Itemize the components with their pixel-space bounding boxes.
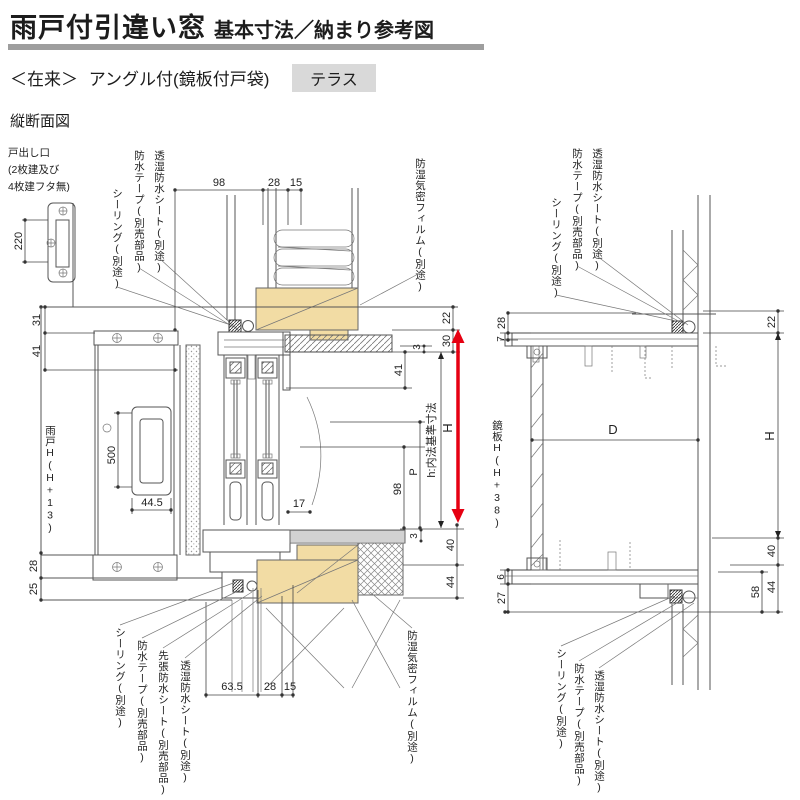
left-section-drawing: 戸出し口 (2枚建及び 4枚建フタ無) 220: [8, 146, 465, 796]
right-drawing-right-dims: 22 H 40 44 58: [703, 309, 784, 613]
page: 雨戸付引違い窓基本寸法／納まり参考図 ＜在来＞ アングル付(鏡板付戸袋) テラス…: [0, 0, 800, 800]
door-outlet-bracket: 220: [13, 203, 75, 307]
label-sealing-bottom-right: シーリング(別途): [555, 648, 567, 750]
dim-D: D: [608, 422, 617, 437]
dim-27: 27: [496, 592, 508, 604]
dim-41-left: 41: [31, 345, 43, 357]
dim-30: 30: [441, 335, 453, 347]
dim-6: 6: [496, 574, 507, 580]
dim-28-top: 28: [268, 177, 280, 189]
dim-31: 31: [31, 314, 43, 326]
dim-44-right-drawing: 44: [766, 581, 778, 593]
section-drawings: 戸出し口 (2枚建及び 4枚建フタ無) 220: [0, 140, 800, 800]
title-main: 雨戸付引違い窓: [10, 13, 206, 43]
dim-22-right: 22: [441, 312, 453, 324]
dim-15-bottom: 15: [284, 681, 296, 693]
dim-44-left-drawing: 44: [445, 576, 457, 588]
right-top-labels: シーリング(別途) 防水テープ(別売部品) 透湿防水シート(別途): [550, 147, 688, 325]
handle-dims: 500 44.5: [103, 411, 173, 514]
head-sealing-backup: [243, 321, 254, 332]
dim-H-left-drawing: H: [440, 423, 455, 432]
label-tape-bottom-left: 防水テープ(別売部品): [136, 639, 148, 764]
red-H-dimension-arrow: H: [440, 329, 465, 523]
label-h-inner-dim: h:内法基準寸法: [424, 402, 438, 477]
label-sheet-top-left: 透湿防水シート(別途): [153, 150, 165, 274]
shutterbox-top-board: [505, 333, 728, 378]
head-sealing-hatch: [229, 320, 241, 332]
dim-22-right-drawing: 22: [766, 316, 778, 328]
dim-28-bottom: 28: [264, 681, 276, 693]
lintel-board-hatch: [285, 335, 392, 352]
dim-15-top: 15: [290, 177, 302, 189]
dim-41-right: 41: [393, 364, 405, 376]
mirror-panel: [527, 346, 547, 570]
floor-crosshatch: [358, 543, 403, 595]
label-film-bottom-right: 防湿気密フィルム(別途): [406, 629, 418, 765]
handle-swing-arc: [307, 397, 321, 505]
label-film-top-right: 防湿気密フィルム(別途): [414, 157, 426, 293]
dim-25: 25: [28, 583, 40, 595]
door-outlet-note-line1: 戸出し口: [8, 146, 50, 159]
label-amado-height: 雨戸H(H+13): [44, 425, 56, 535]
dim-3-floor: 3: [409, 533, 420, 539]
dim-D-line: D: [530, 422, 699, 442]
foundation-braces: [232, 588, 400, 692]
dim-7: 7: [496, 336, 507, 342]
label-tape-top-right: 防水テープ(別売部品): [571, 147, 583, 272]
right-drawing-left-dims: 28 7 6 27: [496, 311, 636, 613]
door-outlet-note-line3: 4枚建フタ無): [8, 180, 70, 193]
terrace-badge: テラス: [292, 64, 376, 92]
right-bottom-labels: シーリング(別途) 防水テープ(別売部品) 透湿防水シート(別途): [555, 596, 694, 794]
dim-28-bottom-left: 28: [28, 560, 40, 572]
insulation-coils: [268, 188, 358, 290]
title-sub: 基本寸法／納まり参考図: [214, 20, 434, 42]
label-sealing-top-right: シーリング(別途): [550, 197, 562, 299]
door-outlet-note-line2: (2枚建及び: [8, 163, 60, 176]
label-kagamiita-height: 鏡板H(H+38): [491, 419, 503, 529]
label-sealing-top-left: シーリング(別途): [111, 188, 123, 290]
dim-98-top: 98: [213, 177, 225, 189]
right-section-drawing: D 鏡板H(H+38) 28 7 6 27: [491, 147, 784, 794]
dim-3-upper: 3: [412, 344, 423, 350]
panel-board-stipple: [186, 345, 200, 555]
dim-H-right-drawing: H: [762, 431, 777, 440]
wall-lines: [672, 195, 710, 690]
dim-40-left-drawing: 40: [445, 539, 457, 551]
label-sheet-bottom-right: 透湿防水シート(別途): [593, 670, 605, 794]
label-tape-bottom-right: 防水テープ(別売部品): [573, 662, 585, 787]
dim-63-5: 63.5: [221, 681, 242, 693]
page-title: 雨戸付引違い窓基本寸法／納まり参考図: [10, 6, 434, 45]
subtitle-row: ＜在来＞ アングル付(鏡板付戸袋) テラス: [10, 64, 376, 92]
floor-board: [290, 530, 405, 543]
label-sheet-bottom-left: 透湿防水シート(別途): [179, 660, 191, 784]
dim-58: 58: [750, 586, 762, 598]
construction-type: ＜在来＞: [10, 70, 78, 89]
product-variant: アングル付(鏡板付戸袋): [89, 70, 270, 89]
title-underline-bar: [8, 44, 484, 50]
dim-220: 220: [13, 232, 25, 250]
shutterbox-bottom-board: [505, 540, 698, 603]
sash-inner: [256, 355, 279, 525]
shutter-handle: [132, 407, 171, 495]
label-sheet-top-right: 透湿防水シート(別途): [591, 148, 603, 272]
dim-28-right-drawing: 28: [496, 317, 508, 329]
left-bottom-dims: 63.5 28 15: [204, 585, 296, 698]
dim-98-right: 98: [392, 483, 404, 495]
label-sakibari-sheet: 先張防水シート(別売部品): [157, 650, 169, 796]
label-tape-top-left: 防水テープ(別売部品): [133, 149, 145, 274]
dim-P: P: [408, 468, 420, 475]
dim-500: 500: [106, 446, 118, 464]
dim-17: 17: [293, 498, 305, 510]
label-sealing-bottom-left: シーリング(別途): [114, 627, 126, 729]
sash-outer: [224, 355, 247, 525]
dim-44-5: 44.5: [141, 497, 162, 509]
dim-40-right-drawing: 40: [766, 545, 778, 557]
section-label: 縦断面図: [10, 110, 70, 131]
